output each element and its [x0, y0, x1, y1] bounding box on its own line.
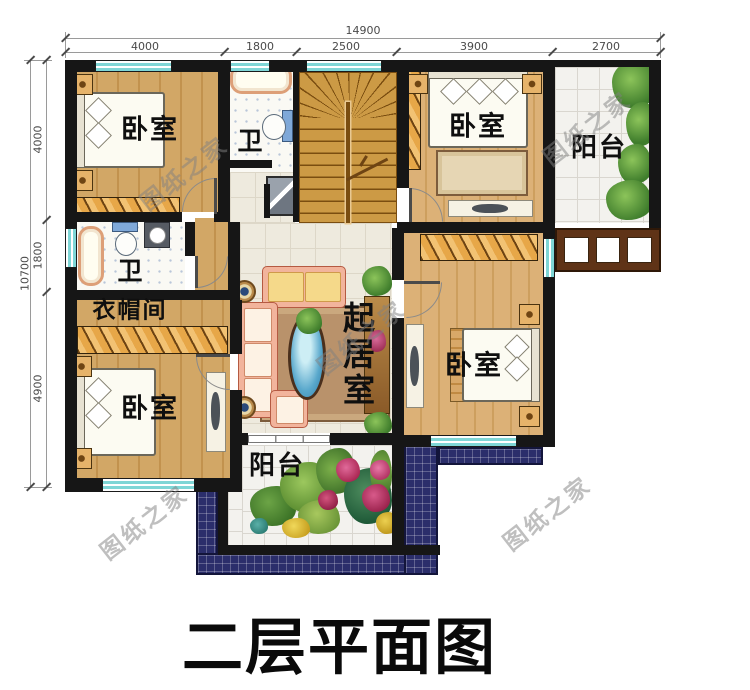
bed-headboard — [76, 368, 85, 456]
window — [230, 60, 270, 72]
nightstand — [519, 304, 540, 325]
door-leaf — [196, 354, 230, 357]
washing-machine — [266, 176, 295, 216]
sofa-cushion — [305, 272, 341, 302]
label-cloakroom: 衣帽间 — [93, 300, 168, 323]
nightstand — [408, 74, 428, 94]
dim-left-total: 10700 — [19, 244, 32, 304]
sofa-cushion — [244, 343, 272, 377]
wall — [232, 433, 248, 445]
wall — [649, 60, 661, 230]
roof-tiles — [196, 553, 438, 575]
door-leaf — [404, 281, 440, 284]
wall — [392, 318, 404, 440]
wall — [330, 433, 392, 445]
decor-bowl — [472, 204, 508, 213]
balcony-railing — [555, 228, 661, 272]
sofa-cushion — [276, 396, 304, 424]
decor-bowl — [410, 346, 419, 386]
dim-left-seg-2: 1800 — [32, 231, 45, 281]
wall — [293, 72, 299, 222]
dim-line — [46, 60, 47, 487]
dim-top-total: 14900 — [328, 24, 398, 37]
floor-plan-canvas: 14900 4000 1800 2500 3900 2700 10700 400… — [0, 0, 750, 690]
dim-top-seg-1: 4000 — [115, 40, 175, 53]
window — [95, 60, 172, 72]
toilet-bowl — [262, 114, 286, 140]
railing-pane — [596, 237, 621, 263]
dim-top-seg-5: 2700 — [576, 40, 636, 53]
bathtub — [78, 226, 104, 286]
railing-pane — [564, 237, 589, 263]
flower-cluster — [362, 484, 390, 512]
railing-pane — [627, 237, 652, 263]
label-bedroom-bottom-left: 卧室 — [121, 396, 179, 423]
wall — [230, 160, 272, 168]
wall — [218, 545, 440, 555]
window — [543, 238, 555, 278]
watermark: 图纸之家 — [495, 467, 598, 558]
label-bathroom-left: 卫 — [117, 259, 144, 284]
sliding-door — [248, 435, 330, 443]
dim-top-seg-2: 1800 — [230, 40, 290, 53]
window — [306, 60, 382, 72]
flower-cluster — [318, 490, 338, 510]
dim-top-seg-3: 2500 — [316, 40, 376, 53]
wall — [65, 212, 182, 222]
label-balcony-bottom: 阳台 — [249, 453, 305, 479]
flower-cluster — [336, 458, 360, 482]
toilet-tank — [112, 222, 138, 232]
label-bedroom-top-left: 卧室 — [121, 117, 179, 144]
dim-top-seg-4: 3900 — [444, 40, 504, 53]
wall — [555, 60, 661, 67]
wall — [228, 222, 240, 292]
window — [65, 228, 77, 268]
wall — [65, 60, 77, 490]
wardrobe-hatch — [77, 326, 228, 354]
wall — [397, 60, 409, 188]
wall — [517, 435, 555, 447]
nightstand — [519, 406, 540, 427]
bed-headboard — [76, 92, 85, 168]
decor-bowl — [211, 392, 220, 430]
bed-headboard — [531, 328, 540, 402]
label-bathroom-top: 卫 — [237, 129, 264, 154]
toilet-bowl — [115, 232, 137, 256]
wall — [543, 278, 555, 447]
flower-cluster — [370, 460, 390, 480]
roof-tiles — [438, 447, 543, 465]
sink-basin — [149, 227, 166, 244]
wall — [392, 440, 404, 548]
label-bedroom-top-right: 卧室 — [449, 114, 507, 141]
door-leaf — [214, 178, 217, 214]
wall — [392, 228, 404, 280]
wardrobe-hatch — [420, 234, 538, 261]
sofa-cushion — [268, 272, 304, 302]
wall — [185, 222, 195, 256]
dim-left-seg-1: 4000 — [32, 115, 45, 165]
flower-cluster — [282, 518, 310, 538]
label-bedroom-bottom-right: 卧室 — [445, 353, 503, 380]
door-leaf — [409, 188, 412, 222]
door-leaf — [195, 256, 198, 288]
page-title: 二层平面图 — [182, 597, 497, 686]
floor-balcony-bottom-ext — [228, 487, 242, 545]
balcony-plant — [606, 180, 652, 220]
wall — [65, 478, 102, 492]
sofa-cushion — [244, 308, 272, 342]
stairs-stringer — [346, 102, 350, 223]
nightstand — [522, 74, 542, 94]
roof-tiles — [404, 445, 438, 575]
wall — [264, 184, 270, 218]
wall — [543, 228, 555, 238]
flower-cluster — [250, 518, 268, 534]
potted-palm — [296, 308, 322, 334]
wall — [397, 222, 555, 233]
dim-line — [65, 38, 661, 39]
bedroom-rug — [436, 150, 528, 196]
wall — [230, 300, 242, 354]
wall — [218, 487, 228, 549]
window — [430, 435, 517, 447]
dim-left-seg-3: 4900 — [32, 364, 45, 414]
